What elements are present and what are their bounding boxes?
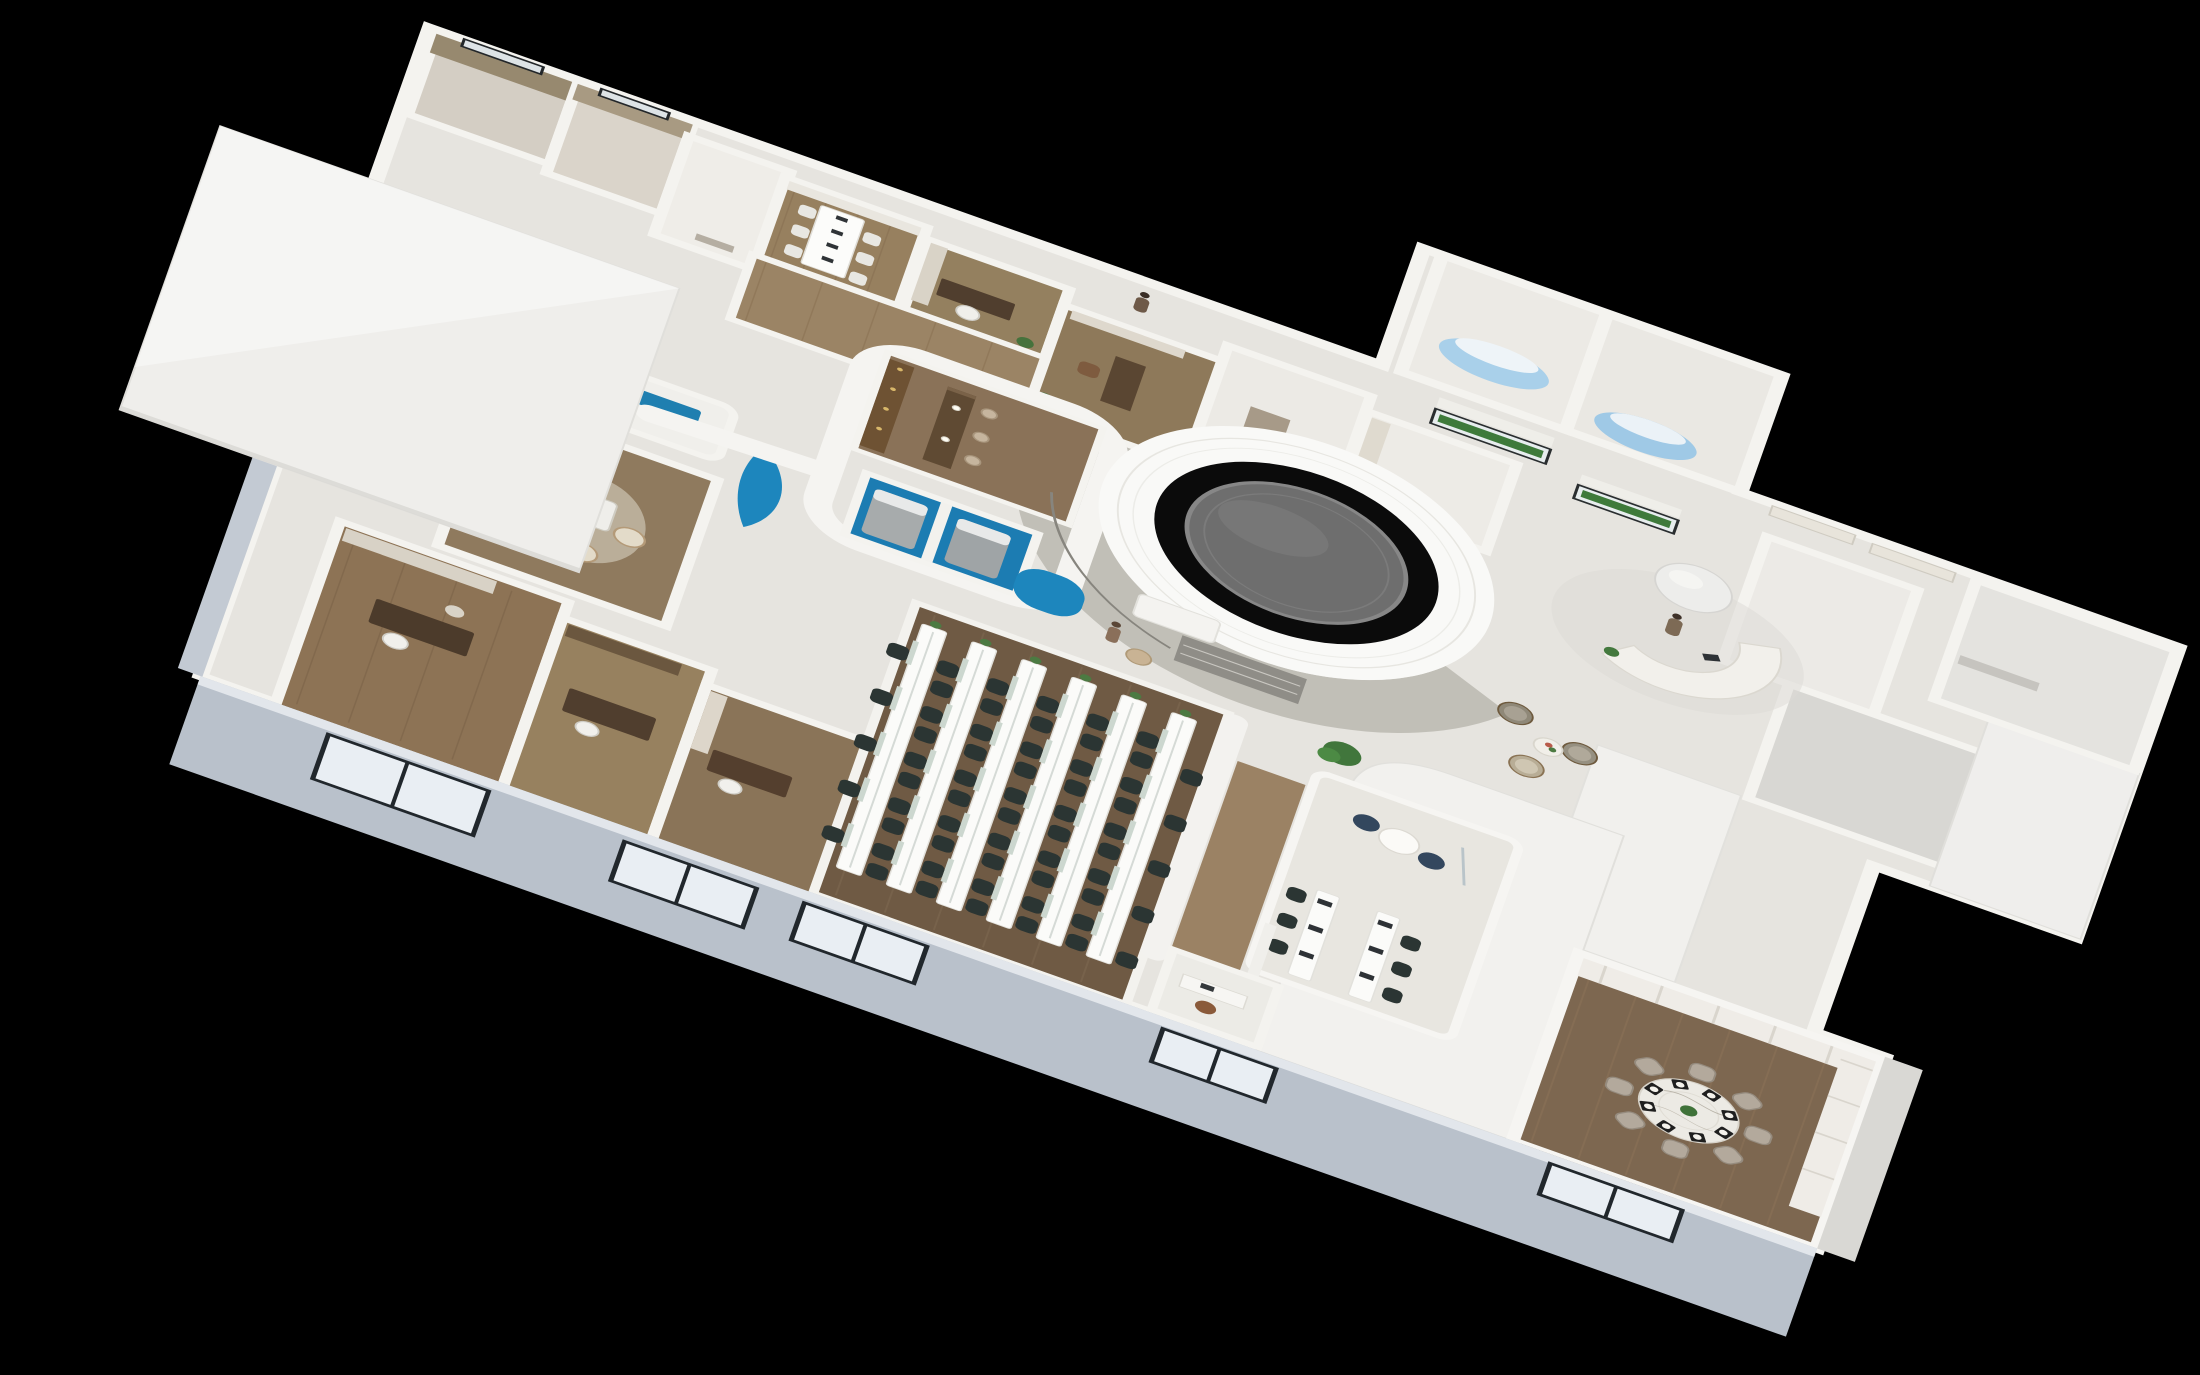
isometric-floorplan-svg [0, 0, 2200, 1375]
floorplan-render: 3D isometric cutaway render of a modern … [0, 0, 2200, 1375]
